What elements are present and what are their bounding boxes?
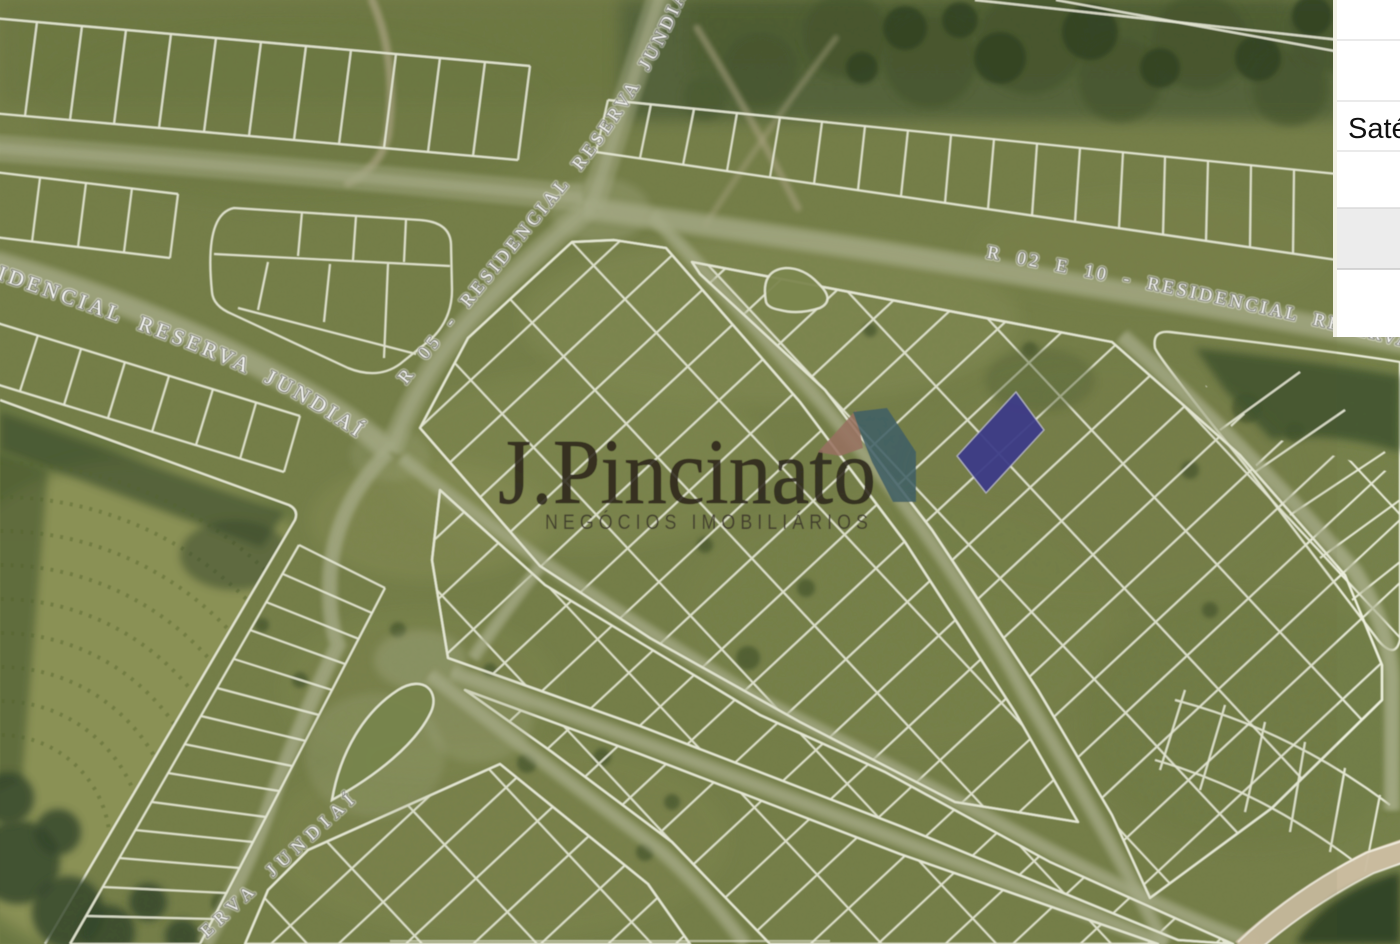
svg-text:Saté: Saté bbox=[1348, 113, 1400, 145]
